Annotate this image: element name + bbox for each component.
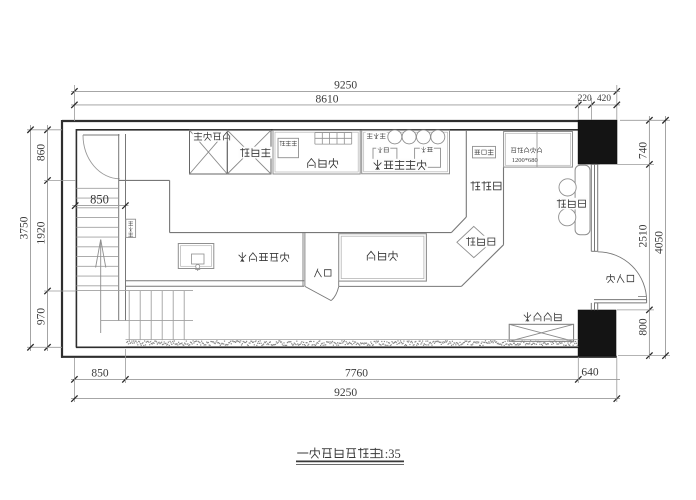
svg-text:9250: 9250 <box>334 80 357 92</box>
svg-text:850: 850 <box>90 193 109 207</box>
svg-text:860: 860 <box>36 144 48 162</box>
svg-text:640: 640 <box>581 366 599 378</box>
svg-text:1:35: 1:35 <box>379 447 401 461</box>
svg-text:1920: 1920 <box>36 221 48 244</box>
svg-text:2510: 2510 <box>637 224 649 247</box>
svg-text:740: 740 <box>637 142 649 160</box>
svg-text:220: 220 <box>578 94 592 104</box>
svg-text:850: 850 <box>91 368 109 380</box>
svg-text:970: 970 <box>36 308 48 326</box>
svg-text:7760: 7760 <box>345 368 368 380</box>
svg-text:9250: 9250 <box>334 387 357 399</box>
svg-text:4050: 4050 <box>654 231 666 254</box>
svg-text:1200*680: 1200*680 <box>512 157 538 164</box>
svg-text:3750: 3750 <box>19 216 31 239</box>
svg-text:8610: 8610 <box>316 93 339 105</box>
svg-text:420: 420 <box>597 94 611 104</box>
svg-text:800: 800 <box>637 318 649 336</box>
